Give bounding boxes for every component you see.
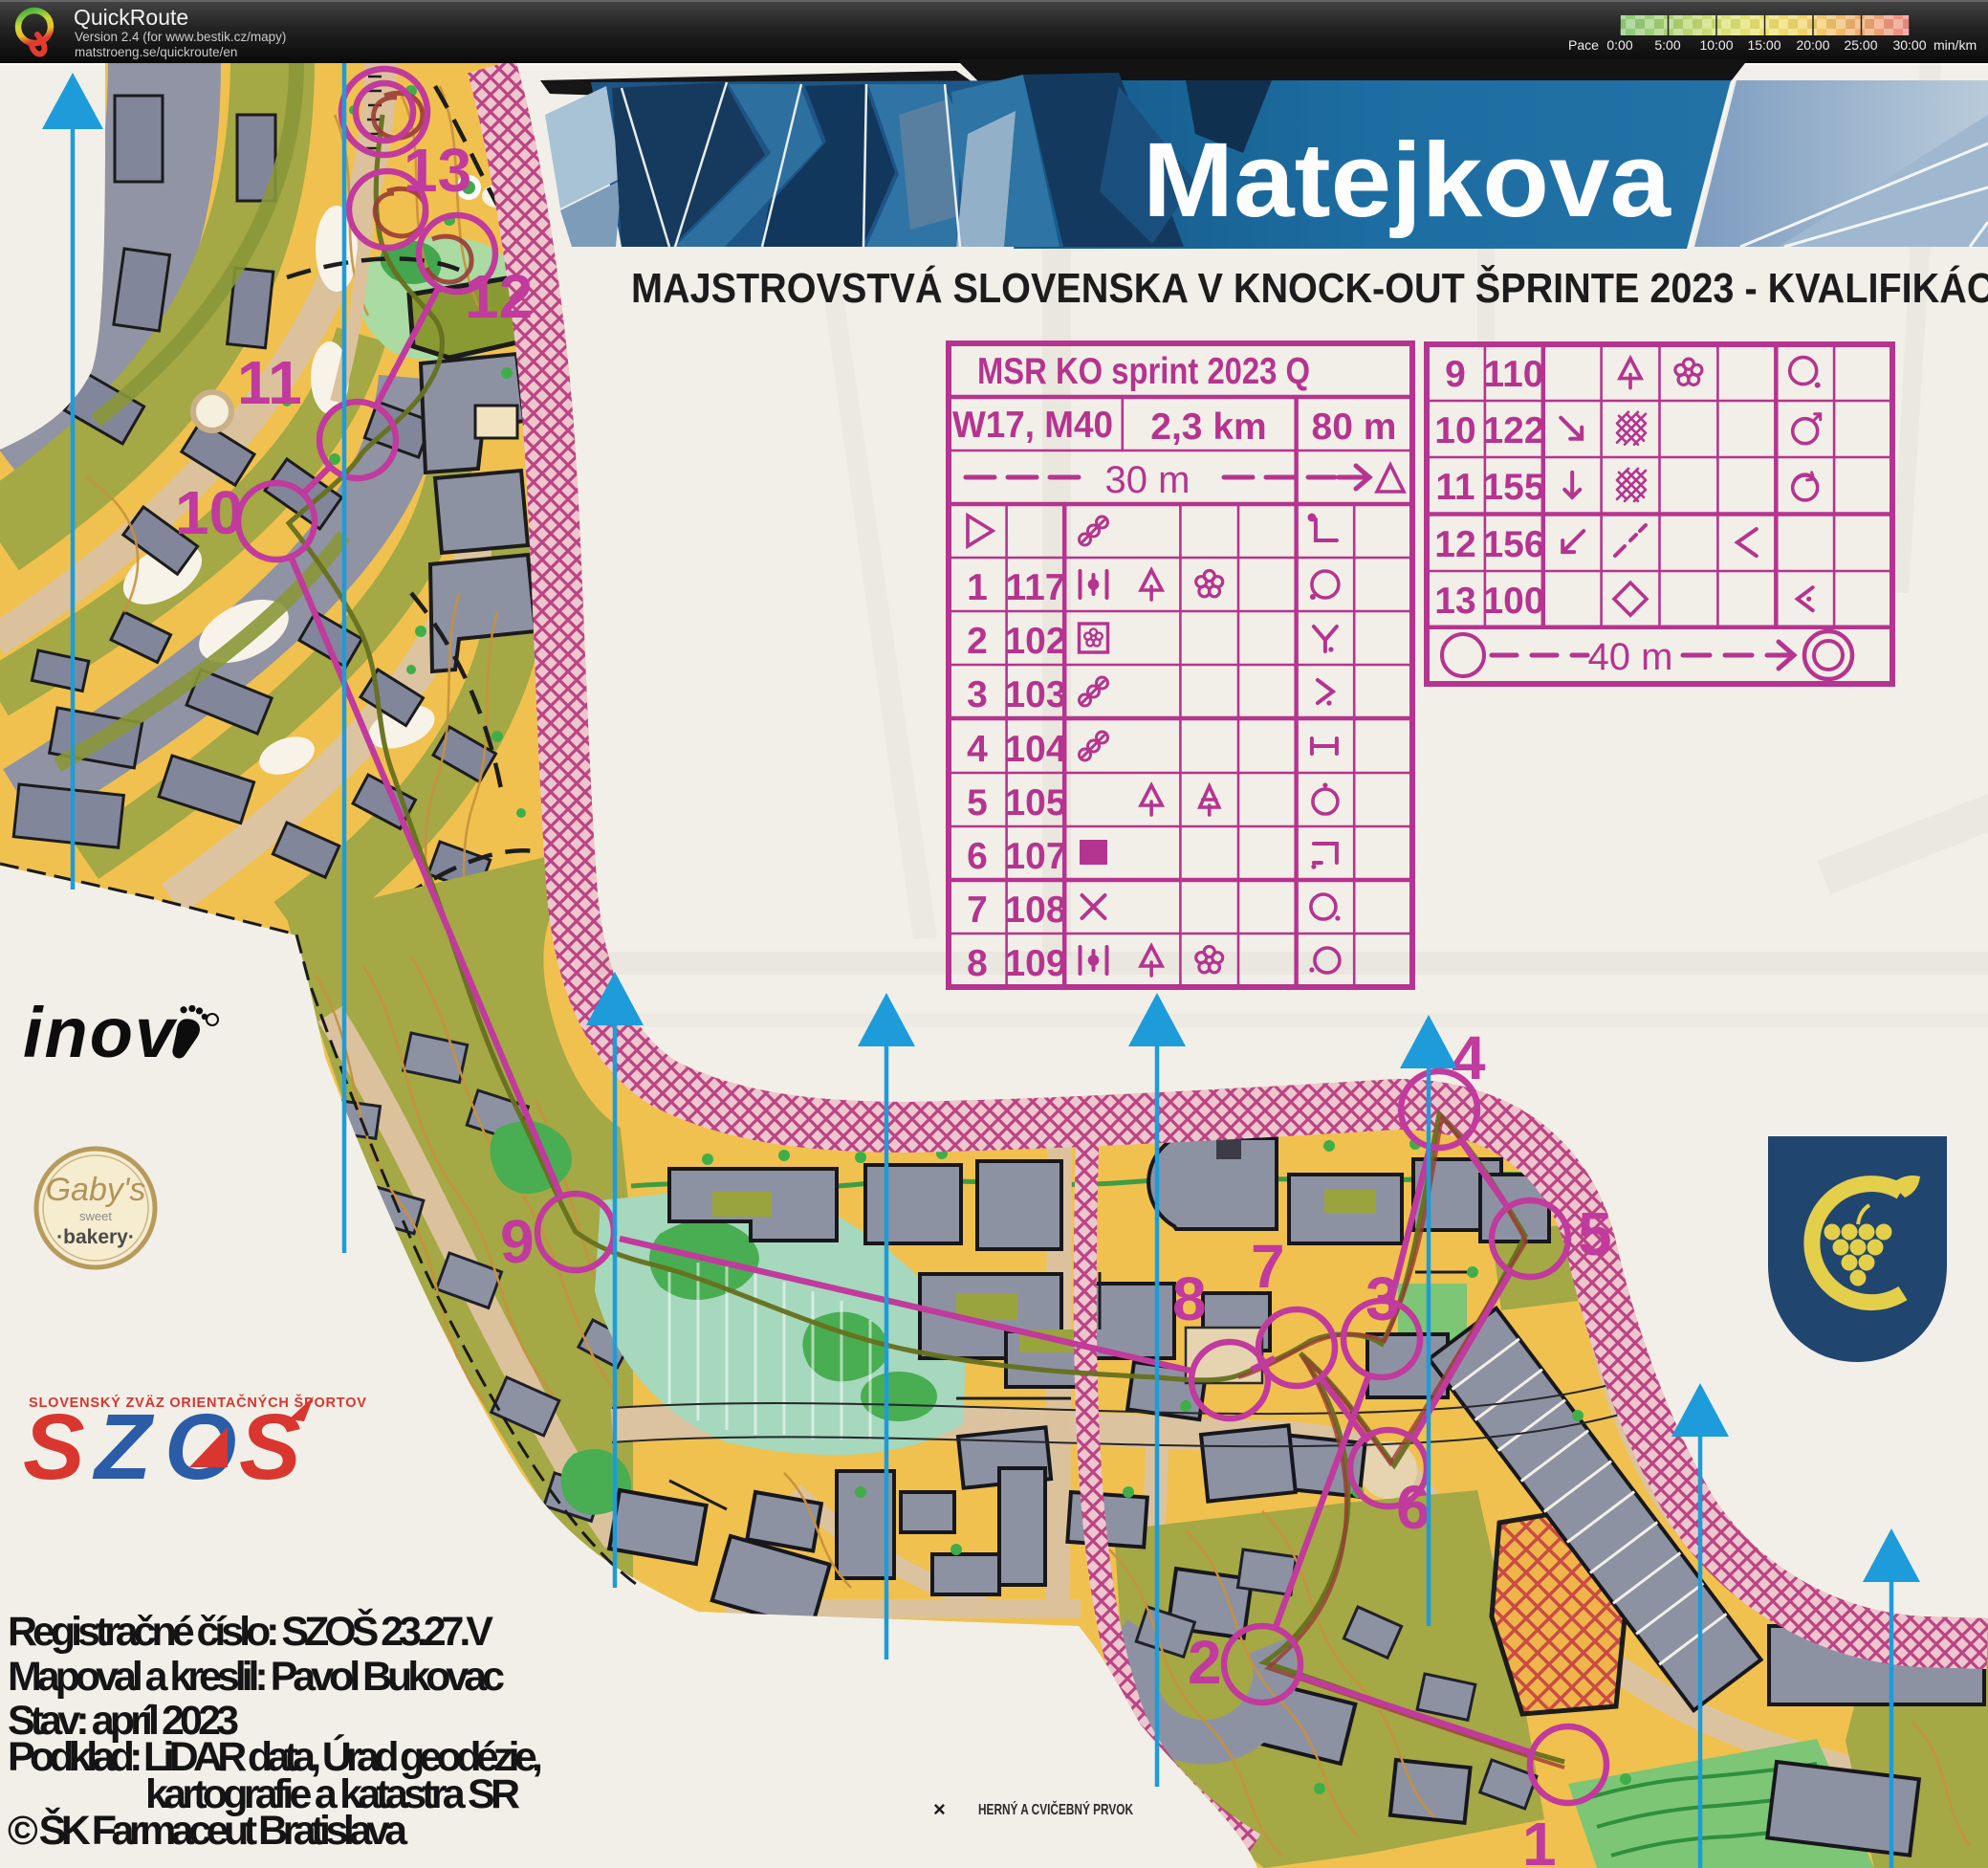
svg-text:2: 2 — [967, 621, 988, 662]
svg-text:11: 11 — [1435, 467, 1475, 508]
svg-text:matstroeng.se/quickroute/en: matstroeng.se/quickroute/en — [75, 45, 237, 59]
svg-text:7: 7 — [1251, 1232, 1285, 1301]
svg-text:Pace: Pace — [1568, 37, 1599, 53]
svg-text:·bakery·: ·bakery· — [56, 1226, 135, 1248]
svg-text:0:00: 0:00 — [1606, 37, 1632, 53]
svg-text:2,3 km: 2,3 km — [1150, 407, 1266, 448]
svg-text:3: 3 — [967, 674, 988, 715]
svg-text:1: 1 — [1522, 1810, 1557, 1868]
svg-text:QuickRoute: QuickRoute — [74, 5, 188, 30]
svg-text:5:00: 5:00 — [1654, 37, 1680, 53]
svg-text:S: S — [239, 1395, 301, 1499]
svg-text:10: 10 — [175, 478, 243, 547]
svg-text:102: 102 — [1004, 621, 1066, 662]
svg-text:5: 5 — [1578, 1199, 1612, 1268]
svg-text:5: 5 — [967, 782, 988, 824]
svg-text:MSR KO sprint 2023 Q: MSR KO sprint 2023 Q — [977, 351, 1310, 392]
svg-text:117: 117 — [1006, 567, 1066, 608]
svg-text:HERNÝ A CVIČEBNÝ PRVOK: HERNÝ A CVIČEBNÝ PRVOK — [978, 1801, 1134, 1818]
svg-text:12: 12 — [1434, 524, 1475, 565]
svg-text:sweet: sweet — [79, 1209, 112, 1223]
svg-text:Registračné číslo: SZOŠ 23.27.: Registračné číslo: SZOŠ 23.27.V — [8, 1608, 493, 1655]
svg-text:30 m: 30 m — [1105, 459, 1191, 501]
svg-text:inov: inov — [23, 993, 178, 1072]
svg-text:104: 104 — [1004, 729, 1066, 770]
svg-text:9: 9 — [1445, 354, 1466, 395]
svg-text:© ŠK Farmaceut Bratislava: © ŠK Farmaceut Bratislava — [8, 1807, 408, 1854]
svg-text:25:00: 25:00 — [1844, 37, 1877, 53]
svg-text:1: 1 — [967, 567, 988, 608]
svg-text:103: 103 — [1004, 674, 1066, 715]
svg-text:109: 109 — [1004, 943, 1066, 984]
svg-text:122: 122 — [1482, 410, 1544, 451]
svg-text:30:00: 30:00 — [1892, 37, 1926, 53]
svg-text:7: 7 — [967, 890, 988, 931]
svg-text:80 m: 80 m — [1312, 407, 1397, 448]
svg-text:40 m: 40 m — [1588, 636, 1673, 678]
svg-text:12: 12 — [465, 262, 533, 331]
svg-text:Version 2.4 (for www.bestik.c: Version 2.4 (for www.bestik.cz/mapy) — [75, 30, 286, 44]
svg-text:15:00: 15:00 — [1747, 37, 1780, 53]
svg-text:13: 13 — [404, 136, 471, 205]
svg-text:Gaby's: Gaby's — [46, 1172, 146, 1208]
svg-text:S: S — [23, 1395, 85, 1499]
svg-text:105: 105 — [1004, 782, 1066, 824]
svg-text:min/km: min/km — [1933, 37, 1977, 53]
svg-text:156: 156 — [1482, 524, 1544, 565]
svg-text:10: 10 — [1434, 410, 1475, 451]
svg-text:4: 4 — [1452, 1023, 1486, 1092]
svg-text:108: 108 — [1004, 890, 1066, 931]
svg-text:155: 155 — [1482, 467, 1544, 508]
svg-text:4: 4 — [967, 729, 988, 770]
svg-text:3: 3 — [1365, 1264, 1400, 1333]
svg-text:107: 107 — [1004, 836, 1066, 877]
svg-text:13: 13 — [1434, 581, 1475, 622]
svg-text:6: 6 — [967, 836, 988, 877]
svg-text:110: 110 — [1484, 354, 1544, 395]
svg-text:MAJSTROVSTVÁ SLOVENSKA V KNOCK: MAJSTROVSTVÁ SLOVENSKA V KNOCK-OUT ŠPRIN… — [631, 263, 1988, 312]
svg-text:6: 6 — [1396, 1473, 1431, 1542]
svg-text:8: 8 — [1172, 1264, 1207, 1333]
svg-text:Mapoval a kreslil: Pavol Bukov: Mapoval a kreslil: Pavol Bukovac — [8, 1654, 505, 1700]
svg-text:100: 100 — [1482, 581, 1544, 622]
svg-text:2: 2 — [1188, 1628, 1222, 1697]
svg-text:8: 8 — [967, 943, 988, 984]
svg-text:11: 11 — [237, 348, 302, 417]
svg-text:Z: Z — [92, 1395, 155, 1499]
svg-text:×: × — [933, 1797, 946, 1821]
svg-text:10:00: 10:00 — [1699, 37, 1733, 53]
svg-text:9: 9 — [500, 1207, 535, 1276]
svg-text:W17, M40: W17, M40 — [952, 405, 1113, 446]
svg-text:Matejkova: Matejkova — [1143, 121, 1671, 239]
svg-text:20:00: 20:00 — [1796, 37, 1829, 53]
